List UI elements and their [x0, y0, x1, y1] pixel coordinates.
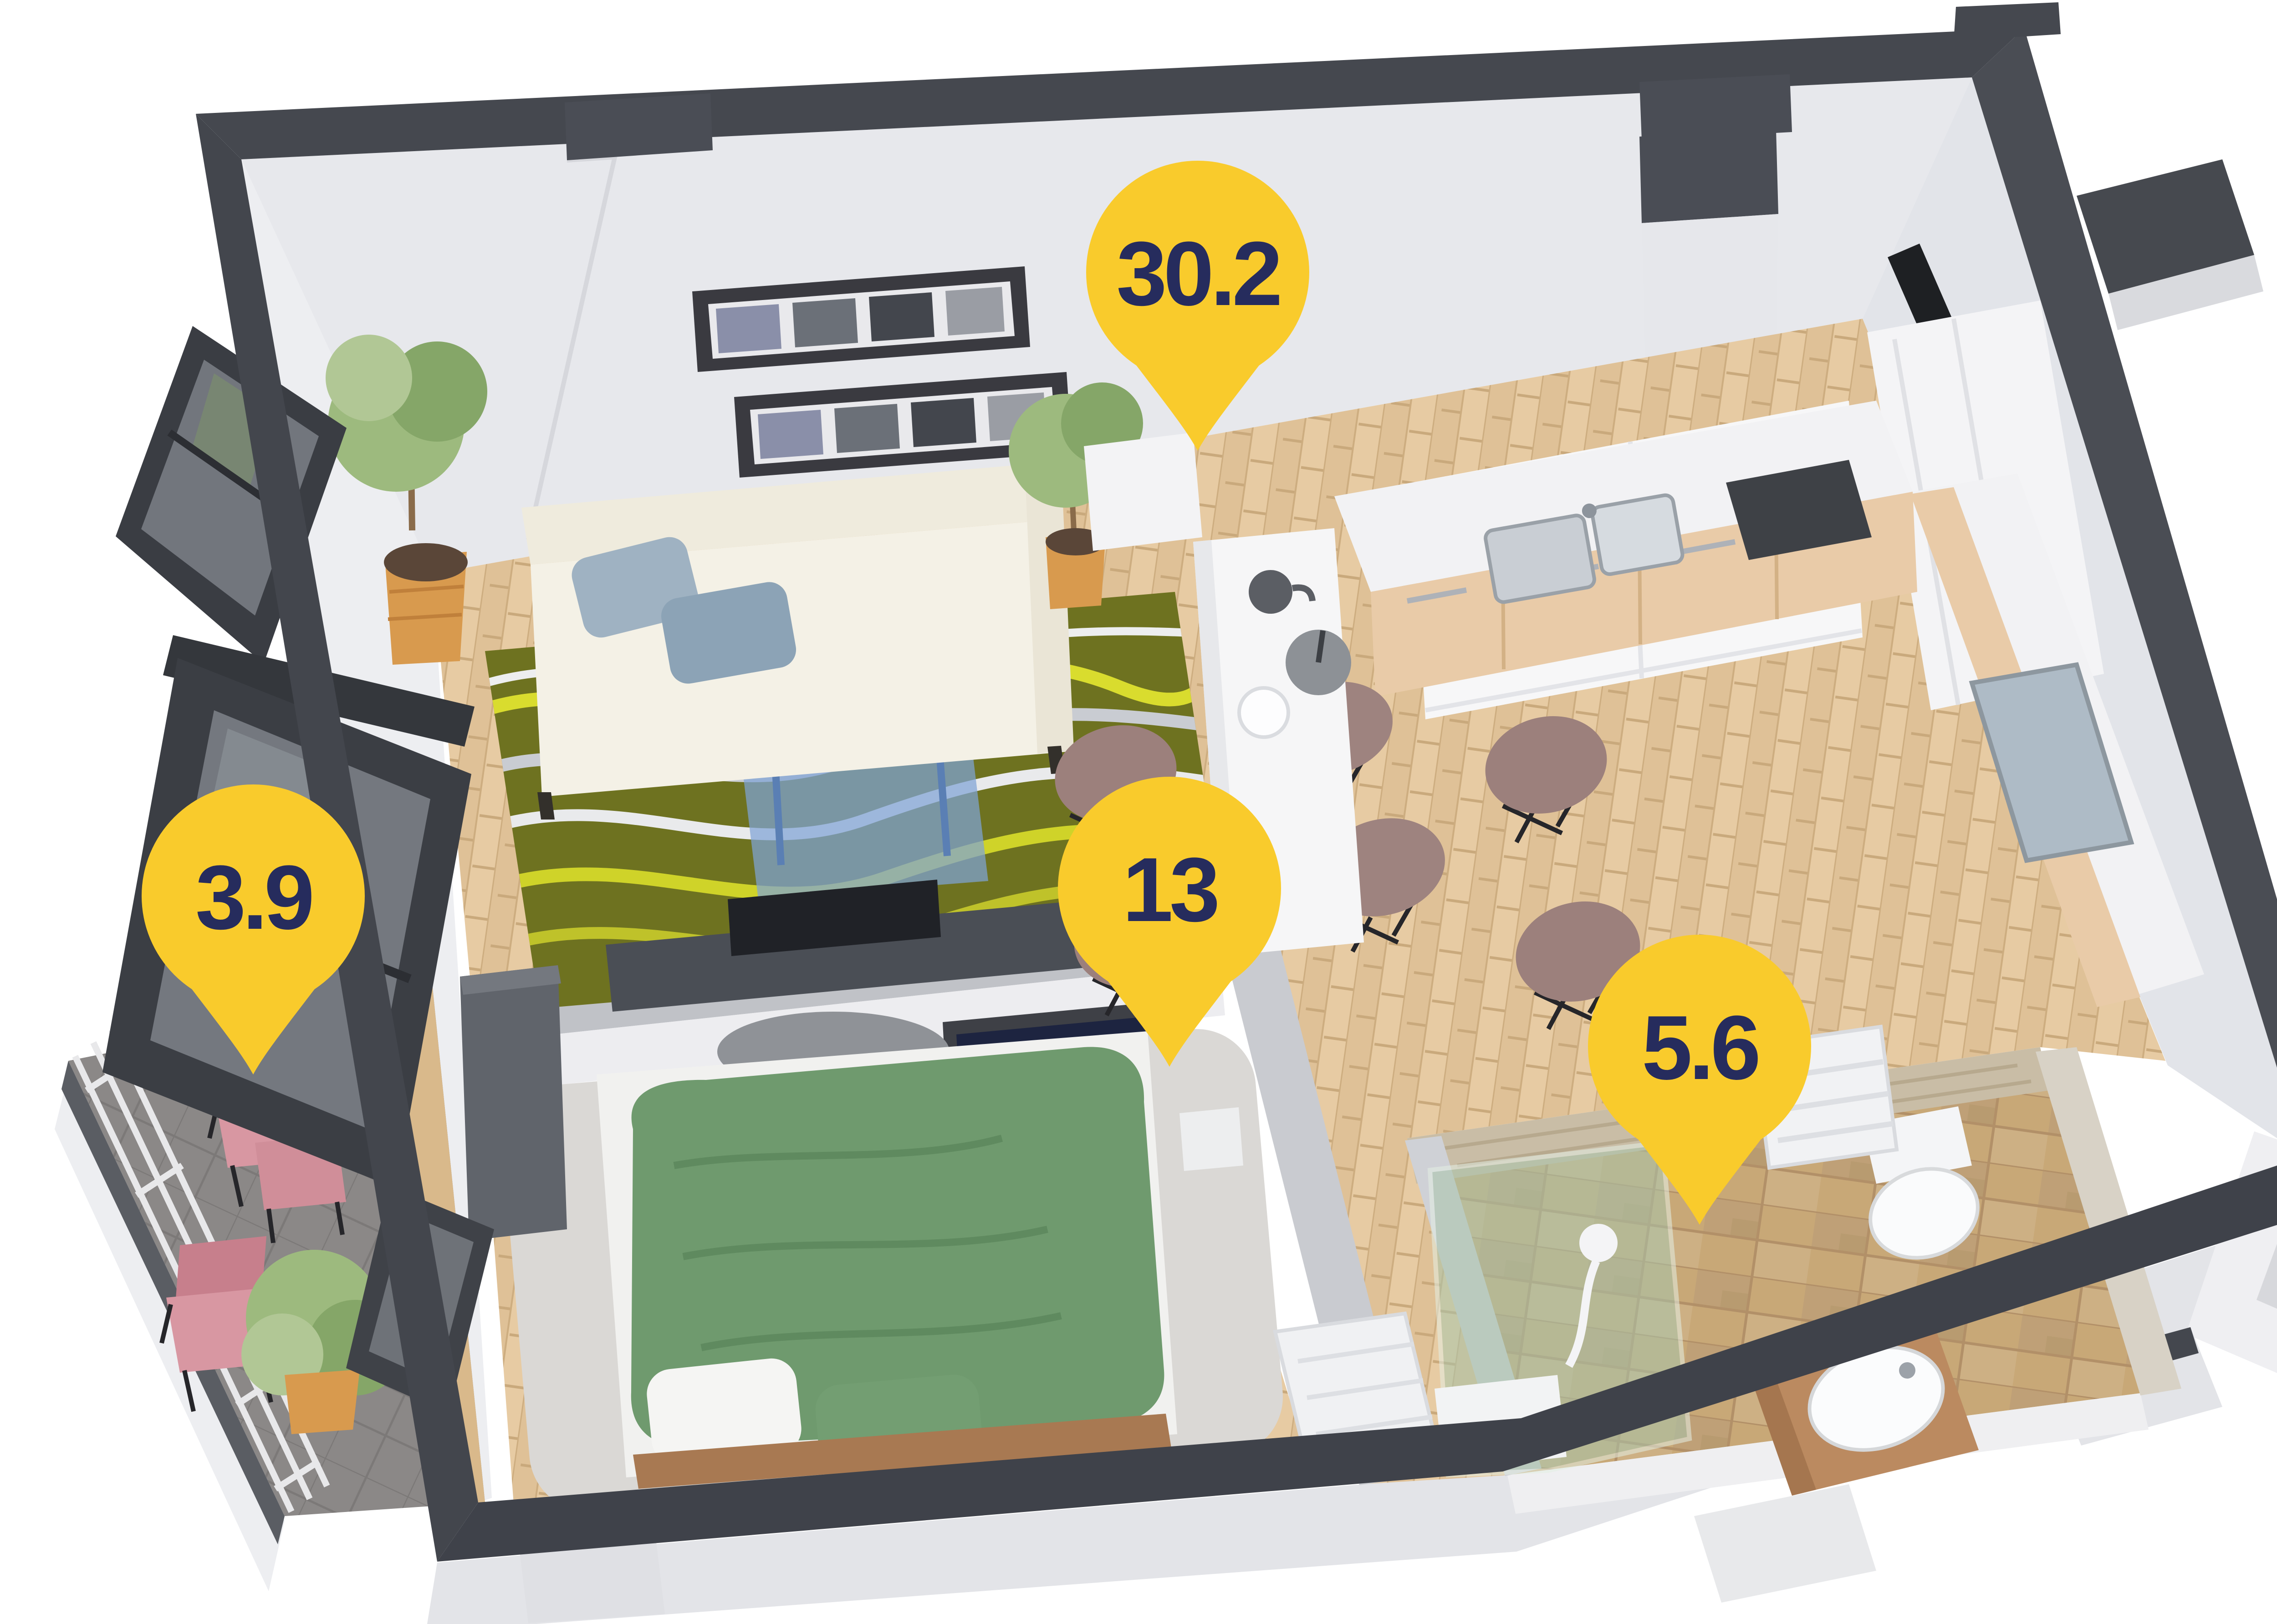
entry-step	[1694, 1484, 1876, 1603]
plate	[1239, 688, 1288, 737]
pin-value: 30.2	[1116, 223, 1279, 325]
pin-value: 13	[1123, 839, 1217, 941]
corner-pillar	[1954, 2, 2061, 41]
floorplan-svg: 30.2 13 5.6 3.9	[0, 0, 2277, 1624]
wardrobe	[460, 965, 567, 1241]
floorplan-render: 30.2 13 5.6 3.9	[0, 0, 2277, 1624]
kitchen-pillar-cap	[1639, 130, 1778, 223]
nightstand	[1179, 1107, 1243, 1171]
north-pillar	[565, 93, 713, 160]
pin-value: 3.9	[195, 847, 311, 948]
pin-value: 5.6	[1642, 997, 1758, 1099]
sink-faucet	[1899, 1362, 1915, 1379]
sideboard	[1084, 433, 1202, 551]
coffee-pot	[1249, 570, 1292, 614]
shower-head	[1579, 1224, 1618, 1262]
north-pillar	[1639, 74, 1792, 140]
